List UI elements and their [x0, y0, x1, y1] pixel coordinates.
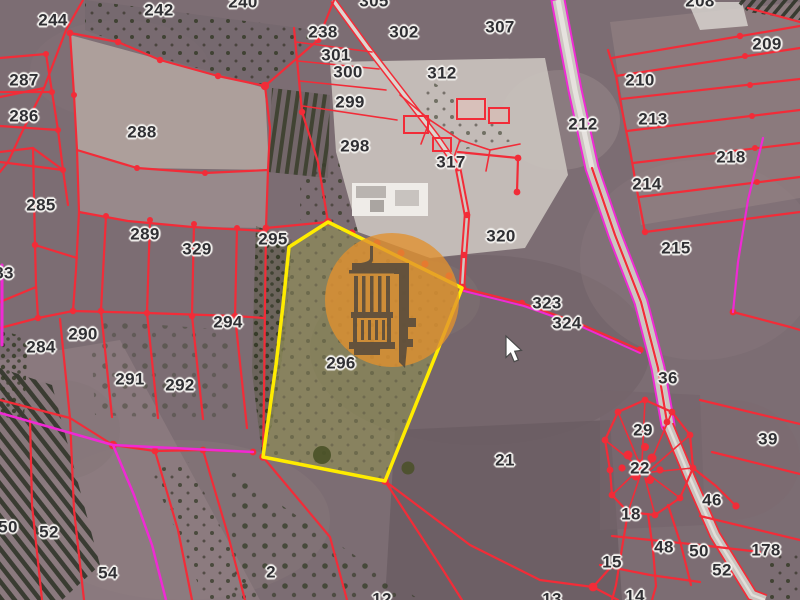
watermark-logo	[325, 233, 459, 368]
map-canvas[interactable]: 2442422402872862882852893292958329028429…	[0, 0, 800, 600]
map-graphics	[0, 0, 800, 600]
